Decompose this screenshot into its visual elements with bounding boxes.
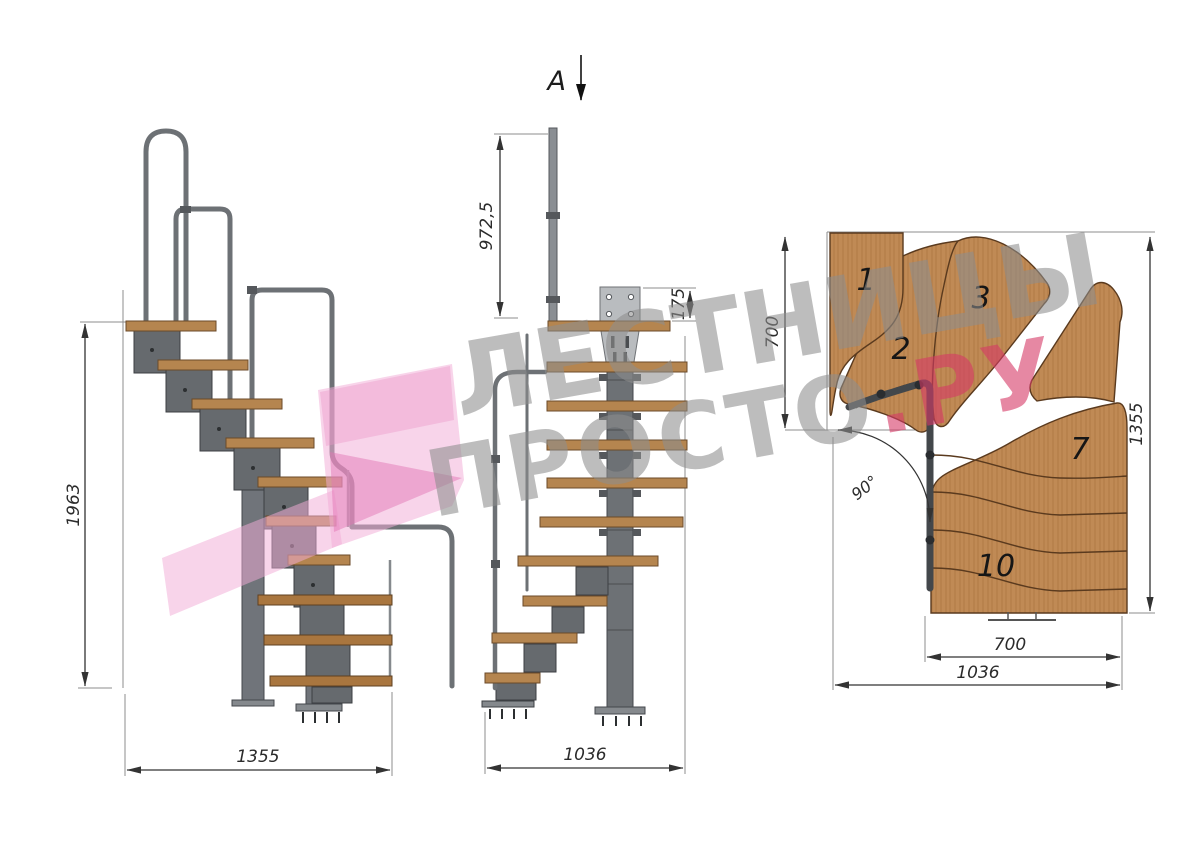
section-marker-label: A bbox=[546, 66, 566, 97]
plan-view-drawing: 90° 1 2 3 7 10 700 1355 700 1036 bbox=[763, 232, 1155, 690]
front-width-dimension: 1036 bbox=[487, 745, 683, 768]
side-height-dimension: 1963 bbox=[64, 324, 85, 686]
drawing-canvas: 1963 1355 bbox=[0, 0, 1200, 849]
plan-lower-flight bbox=[931, 403, 1127, 613]
front-post-label: 972,5 bbox=[477, 202, 497, 251]
plan-width-dimension: 1036 bbox=[835, 663, 1120, 685]
step-label-7: 7 bbox=[1070, 432, 1089, 467]
front-baluster-post bbox=[546, 128, 560, 322]
front-post-dimension: 972,5 bbox=[477, 136, 500, 316]
anchor-bolts bbox=[490, 709, 526, 719]
side-height-label: 1963 bbox=[64, 483, 84, 526]
side-length-label: 1355 bbox=[236, 747, 279, 767]
plan-exit-label: 700 bbox=[994, 635, 1026, 655]
plan-depth-dimension: 1355 bbox=[1127, 237, 1150, 611]
section-marker: A bbox=[546, 55, 581, 100]
plan-width-label: 1036 bbox=[956, 663, 999, 683]
front-plate-label: 175 bbox=[669, 288, 689, 320]
front-plate-dimension: 175 bbox=[669, 288, 690, 320]
step-label-2: 2 bbox=[891, 332, 910, 367]
anchor-bolts bbox=[603, 716, 641, 726]
step-label-1: 1 bbox=[856, 263, 875, 298]
side-length-dimension: 1355 bbox=[127, 747, 390, 770]
plan-winder-step-3 bbox=[932, 237, 1049, 427]
step-label-3: 3 bbox=[971, 281, 990, 316]
staircase-technical-drawing: 1963 1355 bbox=[0, 0, 1200, 849]
turn-angle-label: 90° bbox=[848, 471, 882, 503]
front-width-label: 1036 bbox=[563, 745, 606, 765]
anchor-bolts bbox=[303, 712, 339, 723]
turn-angle-dimension: 90° bbox=[838, 430, 930, 522]
plan-exit-dimension: 700 bbox=[927, 635, 1120, 657]
front-treads bbox=[485, 321, 687, 683]
side-rail-clamps bbox=[180, 206, 257, 294]
front-view-drawing: A 972,5 175 1036 bbox=[477, 55, 696, 774]
plan-entry-dimension: 700 bbox=[763, 237, 785, 428]
plan-entry-label: 700 bbox=[763, 316, 783, 348]
step-label-10: 10 bbox=[977, 549, 1015, 584]
plan-depth-label: 1355 bbox=[1127, 402, 1147, 445]
